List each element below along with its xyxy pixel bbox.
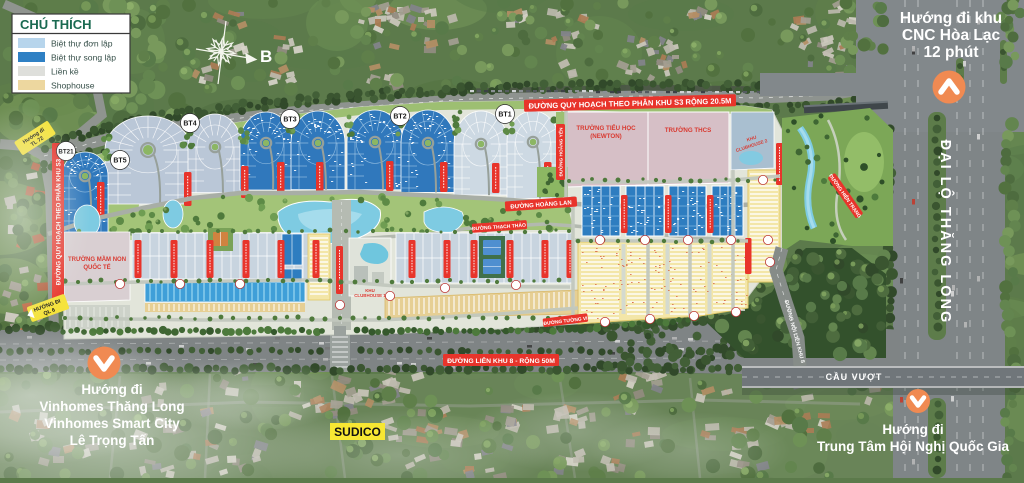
svg-text:TRƯỜNG TIỂU HỌC: TRƯỜNG TIỂU HỌC xyxy=(576,124,636,132)
svg-text:BT3: BT3 xyxy=(283,117,296,124)
svg-text:Trung Tâm Hội Nghị Quốc Gia: Trung Tâm Hội Nghị Quốc Gia xyxy=(817,439,1009,454)
svg-text:BT1: BT1 xyxy=(498,112,511,119)
svg-text:Liền kề: Liền kề xyxy=(51,67,79,77)
svg-text:Biệt thự song lập: Biệt thự song lập xyxy=(51,53,116,63)
svg-text:BT2: BT2 xyxy=(393,114,406,121)
svg-text:Vinhomes Smart City: Vinhomes Smart City xyxy=(44,416,180,431)
svg-text:Hướng đi: Hướng đi xyxy=(882,422,943,437)
svg-text:Vinhomes Thăng Long: Vinhomes Thăng Long xyxy=(39,399,184,414)
svg-text:B: B xyxy=(260,47,272,66)
svg-text:Shophouse: Shophouse xyxy=(51,81,95,91)
svg-text:Biệt thự đơn lập: Biệt thự đơn lập xyxy=(51,39,113,49)
svg-text:Hướng đi khu: Hướng đi khu xyxy=(900,10,1002,27)
svg-text:CLUBHOUSE 1: CLUBHOUSE 1 xyxy=(354,293,386,298)
svg-text:(NEWTON): (NEWTON) xyxy=(590,133,622,140)
svg-text:12 phút: 12 phút xyxy=(923,44,978,61)
svg-text:CẦU VƯỢT: CẦU VƯỢT xyxy=(826,372,883,382)
svg-text:Hướng đi: Hướng đi xyxy=(81,382,142,397)
svg-text:CNC Hòa Lạc: CNC Hòa Lạc xyxy=(902,27,1001,44)
svg-text:SUDICO: SUDICO xyxy=(334,425,381,439)
svg-text:Lê Trọng Tấn: Lê Trọng Tấn xyxy=(70,433,155,448)
svg-text:ĐẠI LỘ THĂNG LONG: ĐẠI LỘ THĂNG LONG xyxy=(937,140,955,325)
svg-text:CHÚ THÍCH: CHÚ THÍCH xyxy=(20,17,92,32)
svg-text:BT5: BT5 xyxy=(113,158,126,165)
svg-text:QUỐC TẾ: QUỐC TẾ xyxy=(83,264,110,271)
svg-text:ĐƯỜNG LIÊN KHU 8 - RỘNG 50M: ĐƯỜNG LIÊN KHU 8 - RỘNG 50M xyxy=(447,356,555,365)
svg-text:BT4: BT4 xyxy=(183,121,196,128)
svg-text:TRƯỜNG THCS: TRƯỜNG THCS xyxy=(665,126,712,134)
